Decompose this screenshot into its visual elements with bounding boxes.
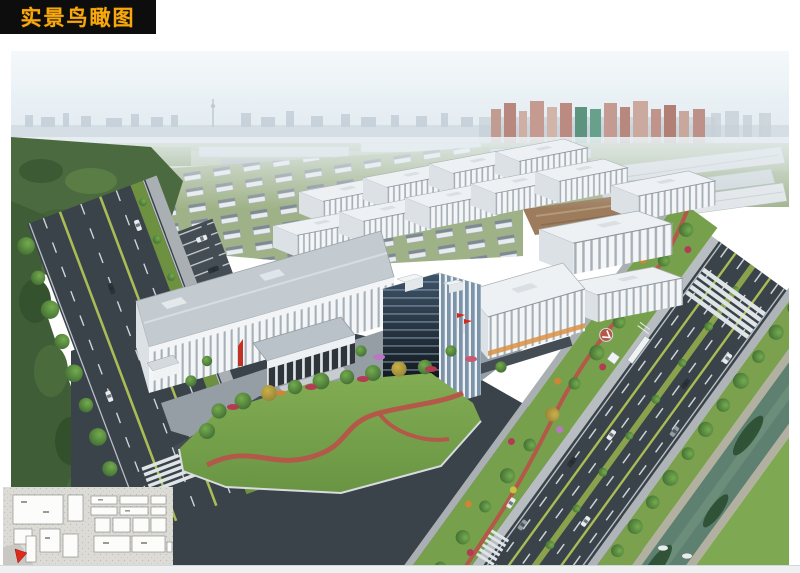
tree xyxy=(445,345,456,356)
tree xyxy=(340,370,354,384)
tree xyxy=(391,361,406,376)
page-footer-strip xyxy=(0,565,800,573)
tree xyxy=(202,356,212,366)
tree xyxy=(261,385,277,401)
page: 实景鸟瞰图 xyxy=(0,0,800,573)
title-text: 实景鸟瞰图 xyxy=(21,2,136,32)
site-plan xyxy=(3,487,173,570)
tree xyxy=(355,345,366,356)
inset-site-plan xyxy=(3,487,173,570)
title-badge: 实景鸟瞰图 xyxy=(0,0,156,34)
tree xyxy=(211,403,226,418)
tree xyxy=(199,423,215,439)
tree xyxy=(288,380,302,394)
tree xyxy=(495,361,506,372)
tree xyxy=(185,375,196,386)
